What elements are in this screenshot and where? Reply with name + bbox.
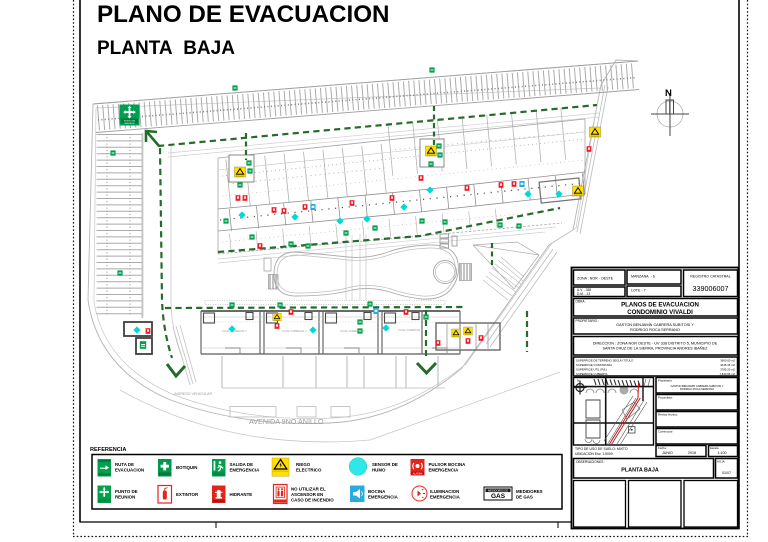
svg-text:ILUMINACION: ILUMINACION [430, 489, 459, 494]
svg-text:PLANO DE EVACUACION: PLANO DE EVACUACION [97, 1, 390, 28]
svg-text:JUNIO: JUNIO [662, 451, 673, 455]
svg-text:GASTON BENJAMIN CABRERA SUBITO: GASTON BENJAMIN CABRERA SUBITOSI Y [616, 323, 694, 327]
svg-text:EMERGENCIA: EMERGENCIA [368, 495, 399, 500]
svg-text:HOJA:: HOJA: [717, 460, 725, 464]
svg-text:CASO DE INCENDIO: CASO DE INCENDIO [291, 498, 334, 503]
svg-text:EMERGENCIA: EMERGENCIA [430, 495, 461, 500]
svg-text:01/07: 01/07 [722, 471, 731, 475]
svg-text:OBSERVACIONES :: OBSERVACIONES : [576, 460, 605, 464]
svg-text:N: N [665, 88, 672, 99]
svg-text:EMERGENCIA: EMERGENCIA [230, 468, 261, 473]
svg-text:7.813.65 m2: 7.813.65 m2 [719, 372, 735, 376]
svg-text:MANZANA - 6: MANZANA - 6 [631, 275, 655, 279]
svg-text:DE GAS: DE GAS [516, 495, 533, 500]
svg-text:Fecha:: Fecha: [658, 446, 667, 450]
svg-text:EVACUACION: EVACUACION [115, 468, 144, 473]
svg-text:SUPERFICIE UTIL (P.B.): SUPERFICIE UTIL (P.B.) [576, 368, 607, 372]
svg-text:PLANTA BAJA: PLANTA BAJA [97, 38, 235, 59]
svg-text:REUNION: REUNION [124, 123, 135, 125]
svg-text:SUPERFICIE CUBIERTA: SUPERFICIE CUBIERTA [576, 372, 608, 376]
svg-text:NO UTILIZAR EL: NO UTILIZAR EL [291, 487, 326, 492]
svg-text:339006007: 339006007 [693, 284, 729, 293]
svg-text:ALARMA: ALARMA [413, 472, 423, 475]
svg-text:LOCAL COMERCIAL 2: LOCAL COMERCIAL 2 [282, 330, 307, 333]
svg-text:SALIDA DE: SALIDA DE [230, 462, 254, 467]
svg-text:PLANOS DE EVACUACION: PLANOS DE EVACUACION [621, 302, 699, 309]
svg-text:HUMO: HUMO [372, 468, 386, 473]
svg-text:UBICACION Esc: 1:5000: UBICACION Esc: 1:5000 [575, 452, 613, 456]
svg-text:LOTE - 7: LOTE - 7 [631, 289, 646, 293]
svg-text:Constructor:: Constructor: [658, 430, 673, 434]
svg-text:PULSOR BOCINA: PULSOR BOCINA [429, 462, 467, 467]
svg-text:Revisor técnico:: Revisor técnico: [658, 413, 678, 417]
svg-text:RIEGO: RIEGO [296, 462, 311, 467]
svg-text:BOTIQUIN: BOTIQUIN [176, 465, 197, 470]
svg-text:SENSOR DE: SENSOR DE [372, 462, 398, 467]
svg-text:RUTA DE: RUTA DE [115, 462, 134, 467]
svg-text:Propietario:: Propietario: [658, 379, 673, 383]
svg-text:LOCAL COMERCIAL 4: LOCAL COMERCIAL 4 [398, 329, 423, 332]
svg-text:Proyectista:: Proyectista: [658, 396, 673, 400]
svg-text:PUNTO DE: PUNTO DE [115, 489, 138, 494]
svg-text:REFERENCIA: REFERENCIA [90, 447, 126, 453]
svg-text:4445.35 m2: 4445.35 m2 [720, 363, 735, 367]
svg-text:GAS: GAS [491, 493, 506, 500]
svg-text:INGRESO VEHICULAR: INGRESO VEHICULAR [174, 392, 213, 396]
svg-text:BOCINA: BOCINA [368, 489, 386, 494]
svg-text:PLANTA BAJA: PLANTA BAJA [621, 468, 659, 474]
svg-text:D.M. - 13: D.M. - 13 [577, 292, 590, 296]
svg-text:3600.00 m2: 3600.00 m2 [720, 359, 735, 363]
svg-text:ELECTRICO: ELECTRICO [296, 468, 322, 473]
svg-text:LOCAL COMERCIAL 1: LOCAL COMERCIAL 1 [222, 330, 247, 333]
svg-text:PROPIETARIO :: PROPIETARIO : [576, 319, 599, 323]
svg-text:RODRIGO ROCA SERRANO: RODRIGO ROCA SERRANO [680, 387, 714, 391]
svg-text:N: N [577, 379, 579, 383]
svg-text:MEDIDORES: MEDIDORES [516, 489, 543, 494]
svg-text:TIPO DE USO DE SUELO: MIXTO: TIPO DE USO DE SUELO: MIXTO [575, 447, 628, 451]
svg-text:SUPERFICIE DE TERRENO SEGUN TI: SUPERFICIE DE TERRENO SEGUN TITULO [576, 359, 634, 363]
svg-text:REGISTRO CATASTRAL: REGISTRO CATASTRAL [690, 275, 730, 279]
svg-text:SANTA CRUZ DE LA SIERRA, PROVI: SANTA CRUZ DE LA SIERRA, PROVINCIA ANDRE… [602, 346, 708, 351]
svg-text:HIDRANTE: HIDRANTE [230, 492, 253, 497]
svg-text:SUPERFICIE CONSTRUIDA: SUPERFICIE CONSTRUIDA [576, 363, 612, 367]
svg-text:ASCENSOR EN: ASCENSOR EN [291, 492, 323, 497]
svg-text:AVENIDA 9NO ANILLO: AVENIDA 9NO ANILLO [249, 417, 324, 426]
svg-text:RODRIGO ROCA SERRANO: RODRIGO ROCA SERRANO [630, 328, 680, 332]
svg-text:EMERGENCIA: EMERGENCIA [429, 468, 460, 473]
svg-text:ZONA : NOR - OESTE: ZONA : NOR - OESTE [577, 277, 614, 281]
svg-text:OBRA :: OBRA : [576, 300, 587, 304]
svg-text:2018: 2018 [688, 451, 696, 455]
svg-text:DIRECCION : ZONA NOR OESTE -: DIRECCION : ZONA NOR OESTE - UV 338 DIST… [593, 342, 718, 346]
svg-text:EXTINTOR: EXTINTOR [176, 492, 199, 497]
svg-text:REUNION: REUNION [115, 495, 135, 500]
svg-text:Escala:: Escala: [710, 446, 719, 450]
svg-text:MEDIDORES DE: MEDIDORES DE [488, 488, 508, 492]
svg-text:1:100: 1:100 [718, 451, 727, 455]
svg-text:CONDOMINIO VIVALDI: CONDOMINIO VIVALDI [627, 309, 693, 316]
svg-text:3785.20 m2: 3785.20 m2 [720, 368, 735, 372]
